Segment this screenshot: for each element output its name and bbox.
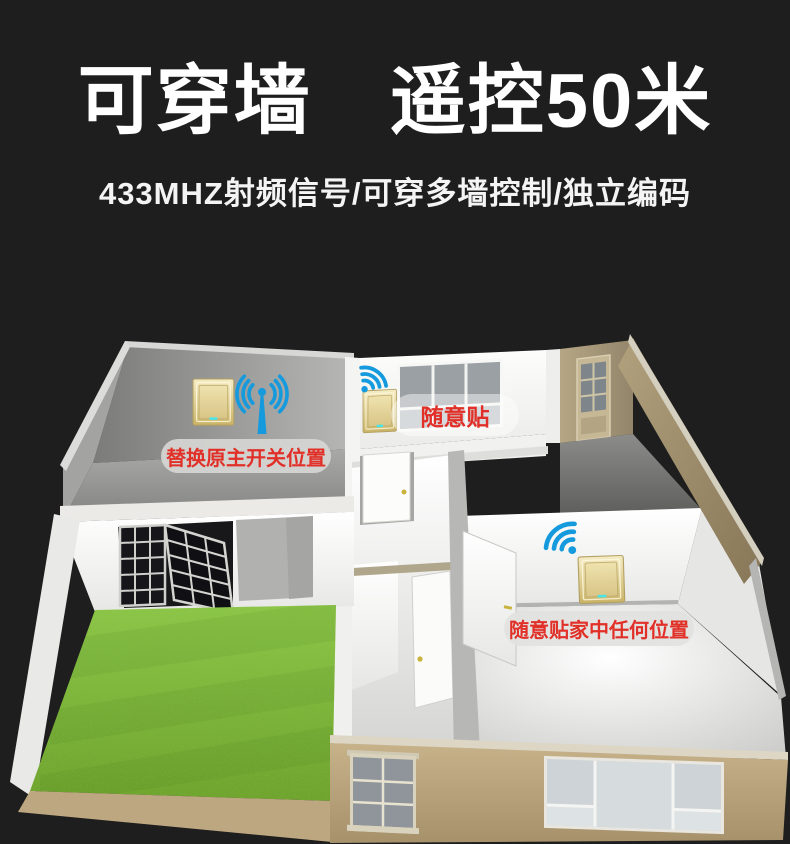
large-window <box>544 756 724 834</box>
callout-stick-anywhere: 随意贴家中任何位置 <box>504 611 694 646</box>
wireless-wall-switch <box>193 379 234 425</box>
living-room-front-wall <box>60 496 354 613</box>
door-handle <box>417 656 422 661</box>
wireless-wall-switch <box>578 555 625 603</box>
hall-door-upper <box>363 452 410 523</box>
subheadline: 433MHZ射频信号/可穿多墙控制/独立编码 <box>0 172 790 216</box>
exterior-front-wall <box>330 735 788 843</box>
headline: 可穿墙 遥控50米 <box>0 58 790 146</box>
door-handle <box>402 490 407 495</box>
small-window <box>347 750 419 834</box>
open-door <box>463 531 516 666</box>
callout-replace-main-switch: 替换原主开关位置 <box>161 439 331 473</box>
callout-stick-freely: 随意贴 <box>391 394 519 436</box>
product-poster: 可穿墙 遥控50米 433MHZ射频信号/可穿多墙控制/独立编码 替换原主开关位… <box>0 0 790 844</box>
folding-door-panel <box>120 525 165 606</box>
entry-door <box>577 355 610 441</box>
hallway <box>332 450 480 762</box>
hall-door-lower <box>412 571 453 708</box>
